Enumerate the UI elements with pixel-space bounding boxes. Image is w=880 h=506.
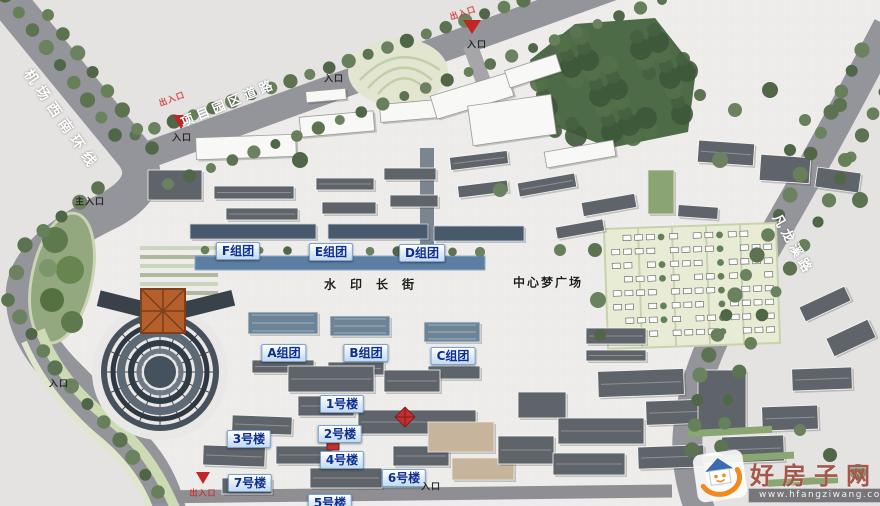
building-badge-2: 2号楼 <box>318 425 362 443</box>
building-badge-1: 1号楼 <box>320 395 364 413</box>
group-badge-a: A组团 <box>261 344 306 362</box>
label-main-entrance: 主入口 <box>75 195 105 208</box>
label-entrance-west: 入口 <box>49 377 69 390</box>
group-badge-d: D组团 <box>399 244 445 262</box>
building-badge-7: 7号楼 <box>228 474 272 492</box>
building-badge-4: 4号楼 <box>320 451 364 469</box>
watermark: 好房子网 www.hfangziwang.com <box>692 446 878 506</box>
label-entrance-topmid: 入口 <box>324 72 344 85</box>
label-center-plaza: 中心梦广场 <box>513 274 583 291</box>
group-badge-b: B组团 <box>343 344 388 362</box>
group-badge-e: E组团 <box>309 243 353 261</box>
group-badge-c: C组团 <box>431 347 476 365</box>
group-badge-f: F组团 <box>216 242 260 260</box>
label-entrance-left: 入口 <box>172 131 192 144</box>
building-badge-6: 6号楼 <box>382 469 426 487</box>
site-plan-map: 机场西南环线 项目园区道路 凡龙溪路 F组团 E组团 D组团 A组团 B组团 C… <box>0 0 880 506</box>
watermark-logo-icon <box>692 446 748 504</box>
watermark-site-url: www.hfangziwang.com <box>748 488 880 503</box>
label-red-gate-bottom: 出入口 <box>190 488 217 499</box>
label-water-street: 水印长街 <box>324 276 428 293</box>
building-badge-3: 3号楼 <box>227 430 271 448</box>
label-entrance-top: 入口 <box>467 38 487 51</box>
label-entrance-bottom: 入口 <box>421 480 441 493</box>
building-badge-5: 5号楼 <box>308 494 352 506</box>
watermark-site-name: 好房子网 <box>750 456 878 491</box>
